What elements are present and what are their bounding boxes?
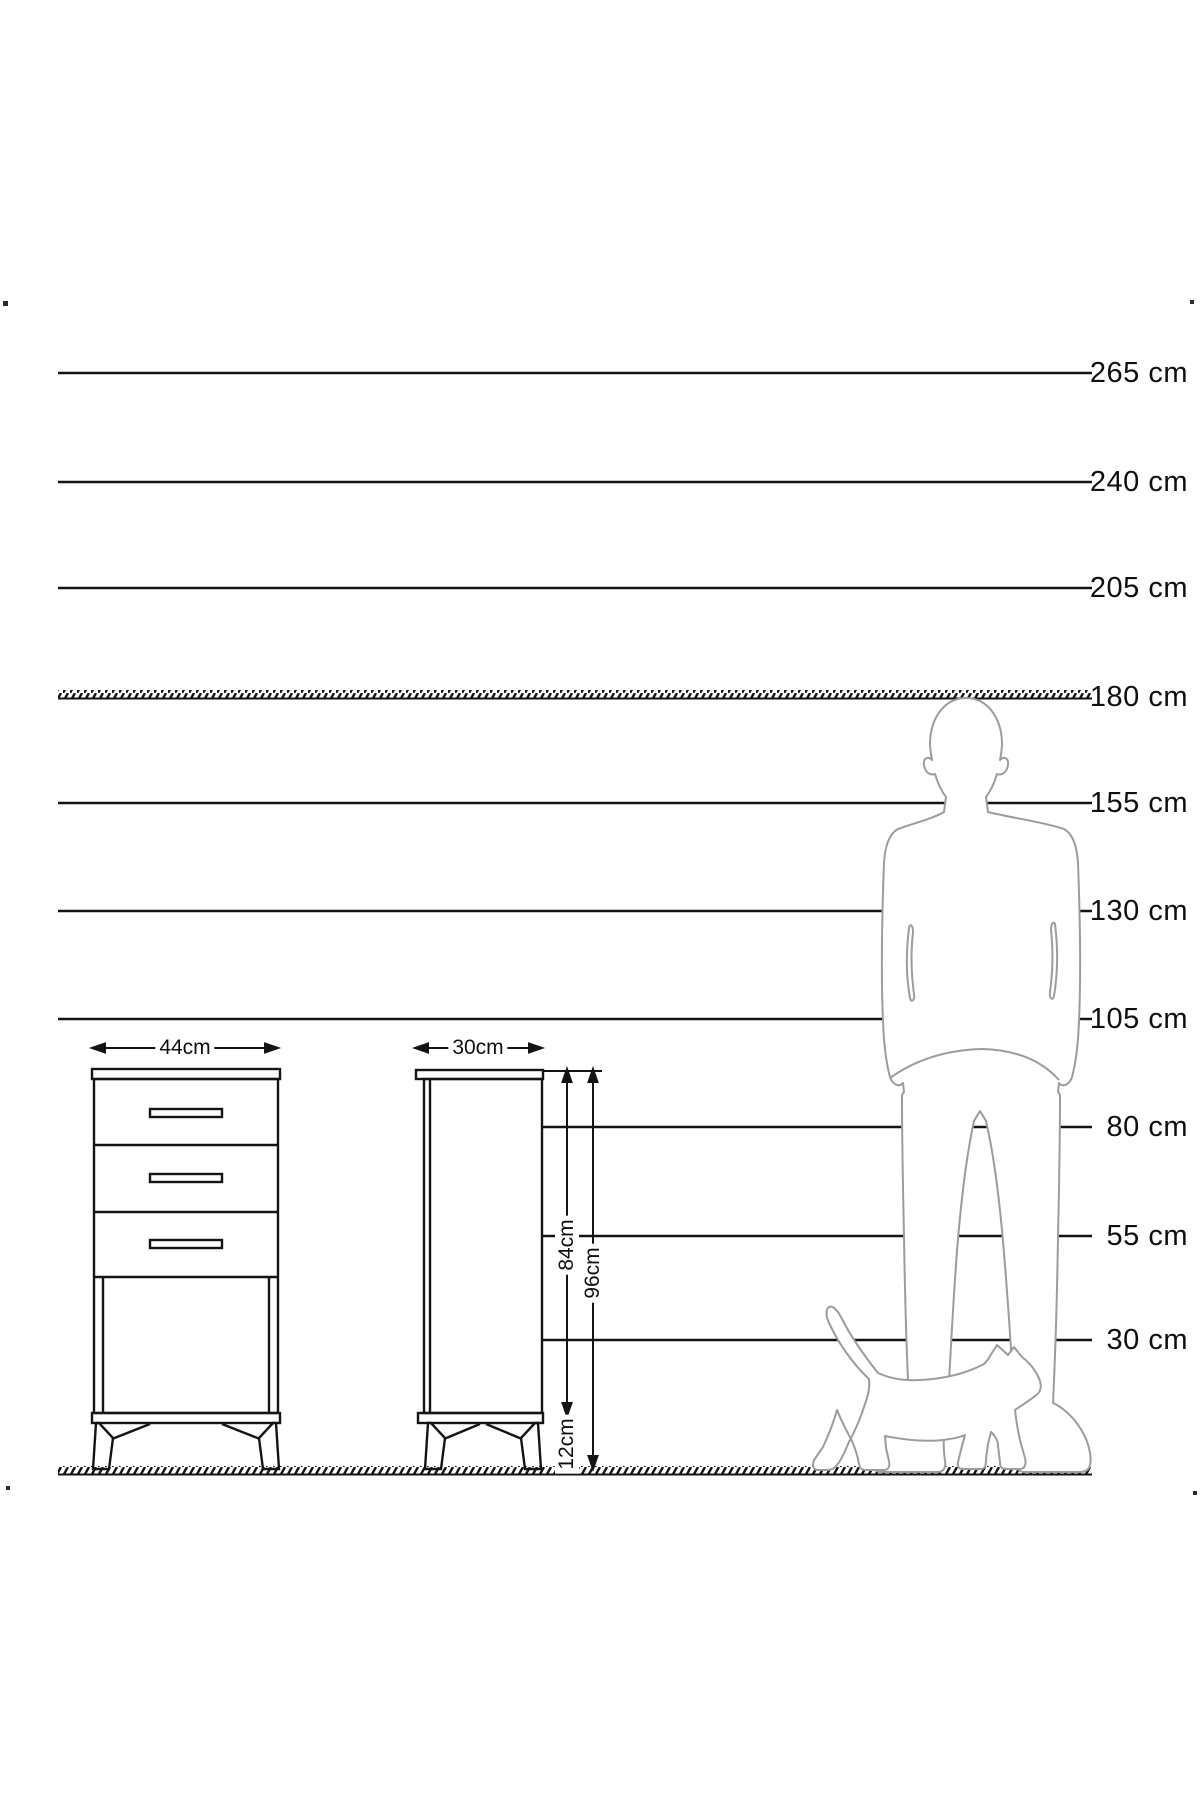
- dimension-lines: [92, 1044, 602, 1470]
- dim-30-arrow-left: [415, 1044, 428, 1053]
- front-body: [94, 1079, 278, 1413]
- cabinet-front-view: [92, 1069, 280, 1469]
- side-body: [424, 1079, 542, 1413]
- dim-44-arrow-right: [265, 1044, 278, 1053]
- dim-44-arrow-left: [92, 1044, 105, 1053]
- front-left-leg: [93, 1423, 113, 1469]
- side-bottom-board: [418, 1413, 543, 1423]
- diagram-canvas: 265 cm 240 cm 205 cm 180 cm 155 cm 130 c…: [0, 0, 1200, 1800]
- front-right-leg-strut: [222, 1424, 260, 1439]
- scale-label-130: 130 cm: [1028, 893, 1188, 929]
- front-drawer-handle-3: [150, 1240, 222, 1248]
- scale-label-265: 265 cm: [1028, 355, 1188, 391]
- dim-label-body-height: 84cm: [555, 1215, 579, 1274]
- front-bottom-board: [92, 1413, 280, 1423]
- scale-label-155: 155 cm: [1028, 785, 1188, 821]
- scale-label-105: 105 cm: [1028, 1001, 1188, 1037]
- side-right-leg: [521, 1423, 541, 1469]
- scale-label-30: 30 cm: [1028, 1322, 1188, 1358]
- side-right-leg-strut: [486, 1424, 522, 1439]
- side-top-board: [416, 1070, 543, 1079]
- dim-label-front-width: 44cm: [155, 1036, 214, 1060]
- scale-label-180: 180 cm: [1028, 679, 1188, 715]
- scale-label-240: 240 cm: [1028, 464, 1188, 500]
- front-drawer-handle-1: [150, 1109, 222, 1117]
- scale-label-205: 205 cm: [1028, 570, 1188, 606]
- dim-label-leg-height: 12cm: [555, 1414, 579, 1473]
- diagram-linework: [0, 0, 1200, 1800]
- side-left-leg: [425, 1423, 445, 1469]
- side-left-leg-strut: [444, 1424, 480, 1439]
- scale-label-80: 80 cm: [1028, 1109, 1188, 1145]
- front-drawer-handle-2: [150, 1174, 222, 1182]
- front-top-board: [92, 1069, 280, 1079]
- dim-30-arrow-right: [529, 1044, 542, 1053]
- front-right-leg: [259, 1423, 279, 1469]
- dim-label-side-depth: 30cm: [448, 1036, 507, 1060]
- cabinet-side-view: [416, 1070, 543, 1469]
- scale-label-55: 55 cm: [1028, 1218, 1188, 1254]
- front-left-leg-strut: [112, 1424, 150, 1439]
- dim-label-total-height: 96cm: [581, 1243, 605, 1302]
